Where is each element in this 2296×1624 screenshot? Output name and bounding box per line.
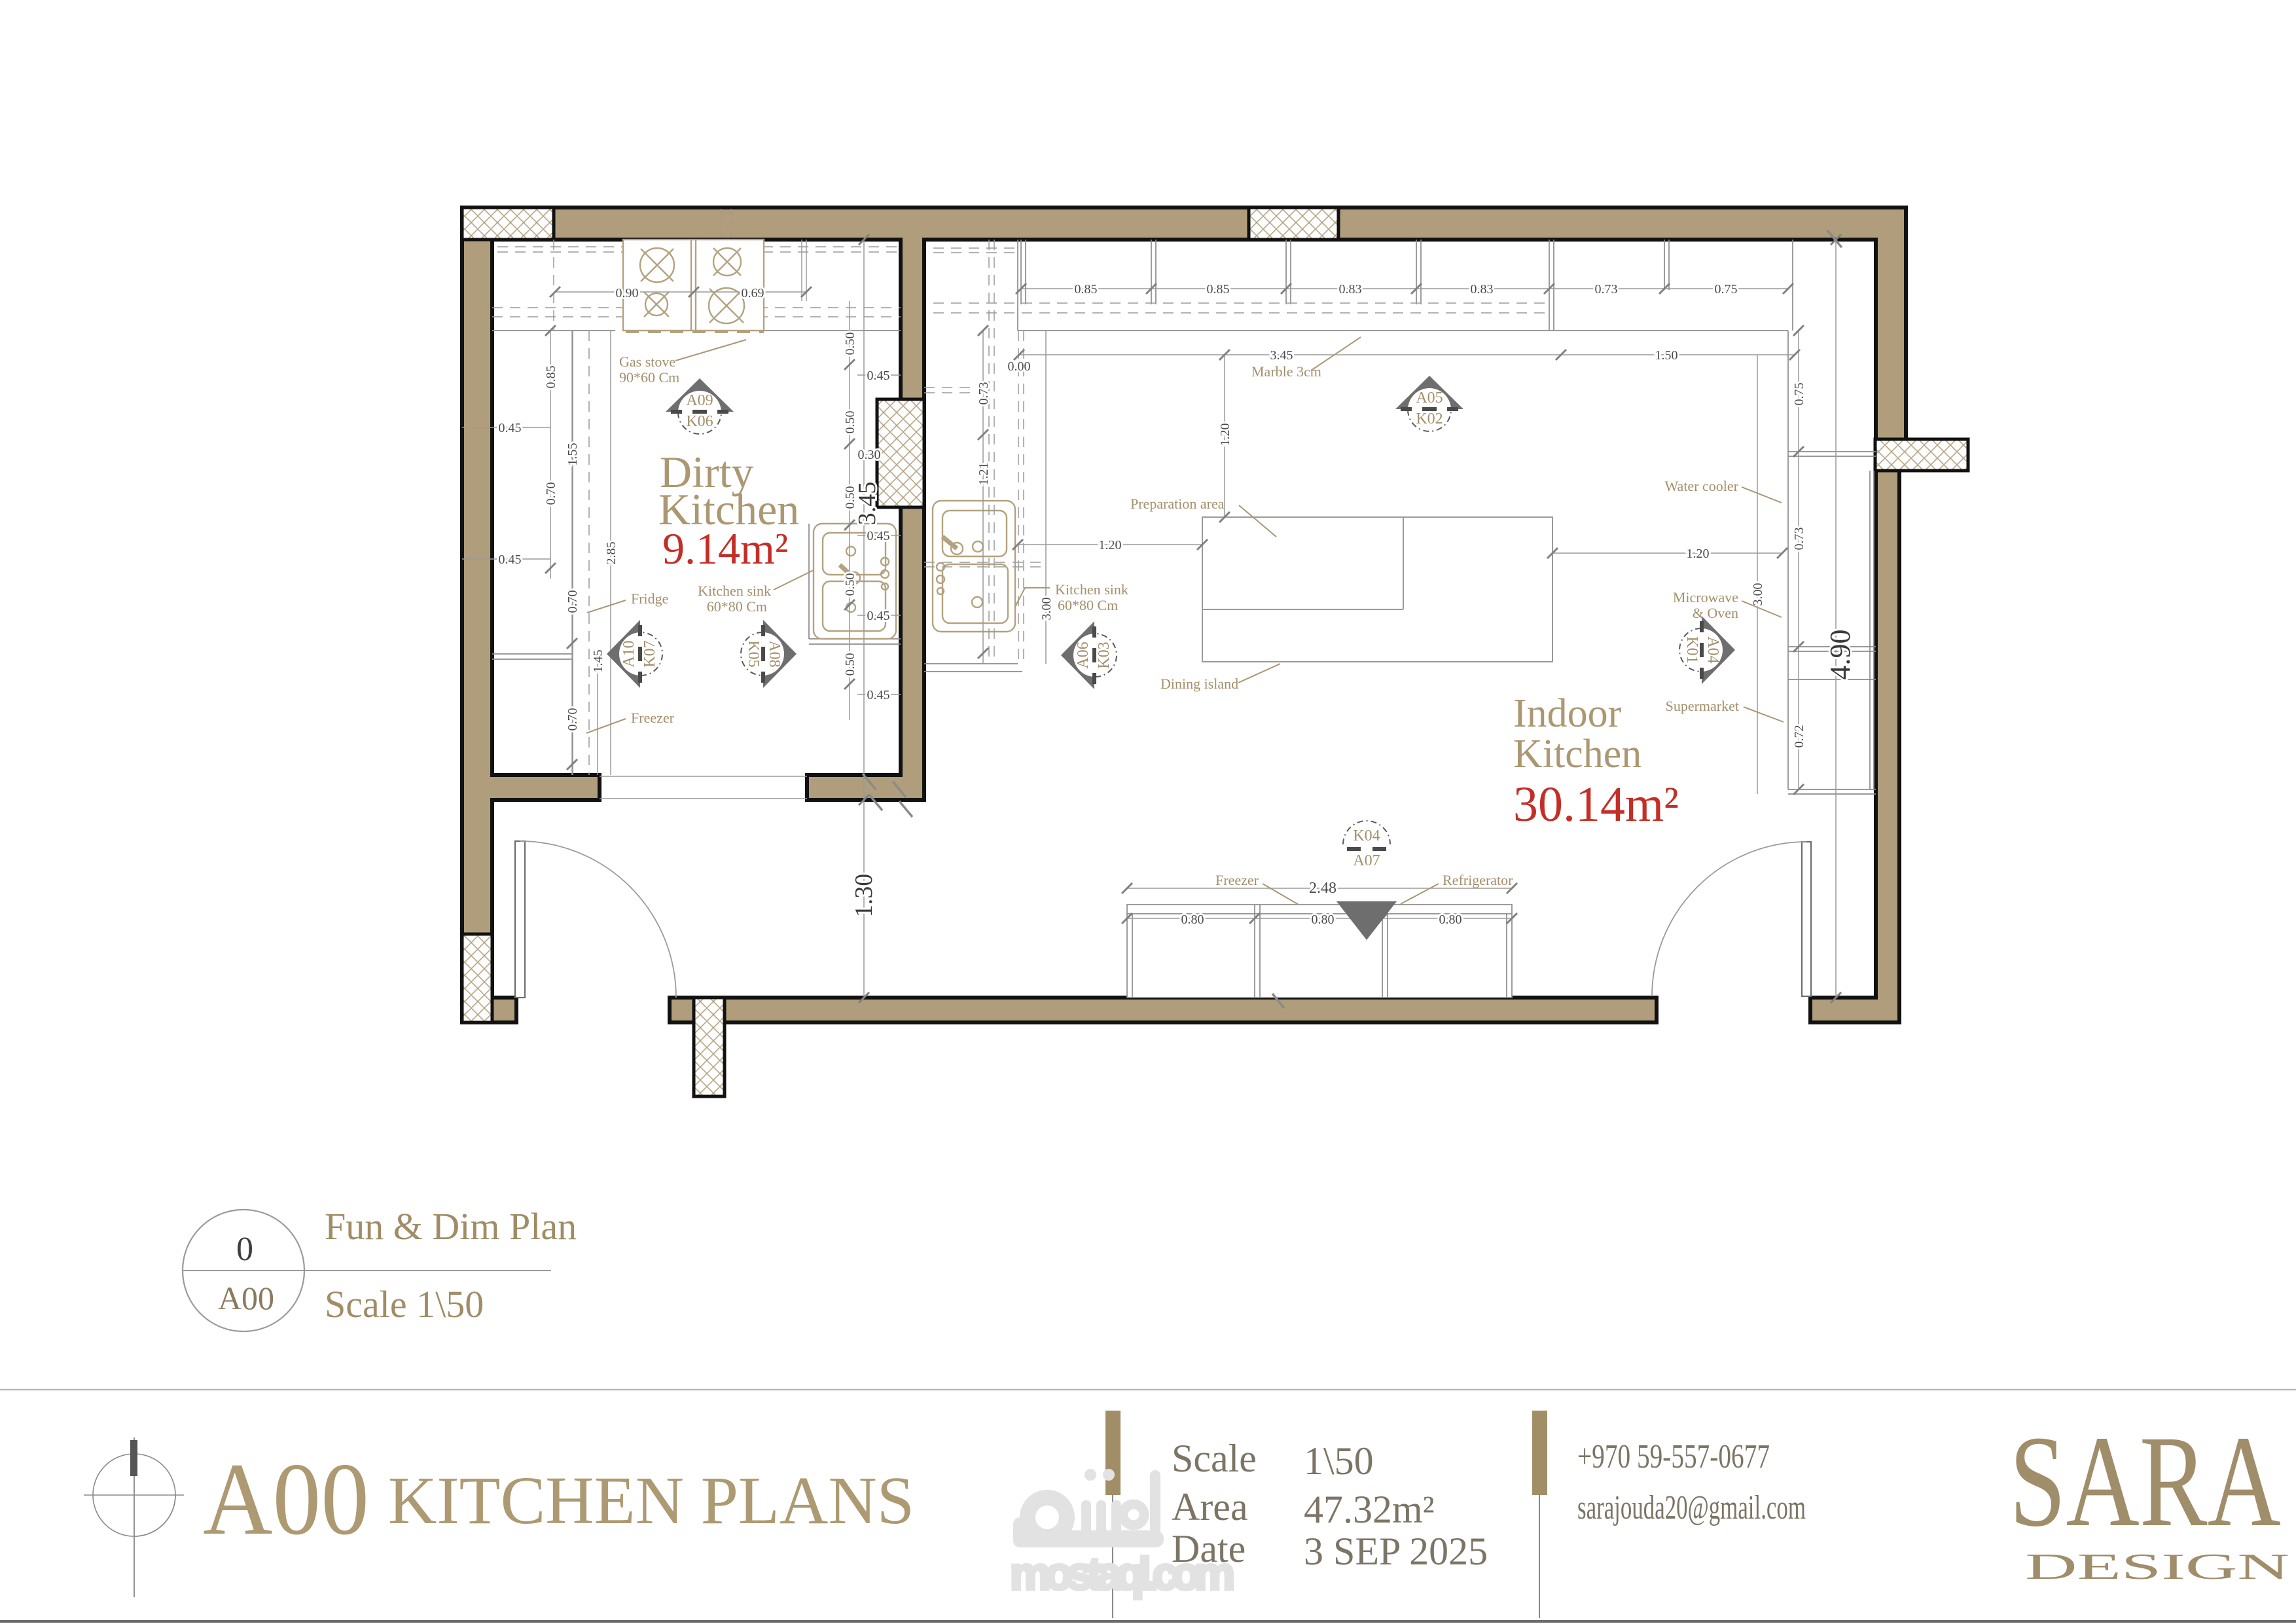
svg-text:1.20: 1.20 <box>1687 547 1710 561</box>
svg-text:Kitchen: Kitchen <box>1513 732 1641 776</box>
svg-text:0.85: 0.85 <box>544 366 558 389</box>
svg-text:2.48: 2.48 <box>1309 880 1336 897</box>
svg-text:A08: A08 <box>766 640 783 667</box>
svg-text:0.80: 0.80 <box>1181 912 1204 927</box>
svg-text:60*80 Cm: 60*80 Cm <box>707 598 767 615</box>
svg-text:K03: K03 <box>1096 641 1113 668</box>
svg-text:A06: A06 <box>1075 641 1092 668</box>
svg-text:60*80 Cm: 60*80 Cm <box>1058 597 1118 613</box>
svg-text:1.20: 1.20 <box>1099 538 1122 552</box>
svg-text:3.00: 3.00 <box>1751 583 1765 606</box>
svg-text:Microwave: Microwave <box>1673 589 1738 605</box>
svg-text:1.55: 1.55 <box>565 443 580 466</box>
svg-text:K05: K05 <box>745 640 762 667</box>
svg-text:0.45: 0.45 <box>867 688 890 702</box>
svg-text:A00: A00 <box>218 1280 274 1316</box>
svg-text:K01: K01 <box>1683 636 1700 663</box>
svg-text:1.50: 1.50 <box>1655 348 1678 363</box>
svg-text:0.50: 0.50 <box>843 333 857 355</box>
svg-text:0.85: 0.85 <box>1075 282 1098 297</box>
svg-text:Scale 1\50: Scale 1\50 <box>325 1283 484 1326</box>
svg-text:4.90: 4.90 <box>1824 630 1856 680</box>
svg-text:0.70: 0.70 <box>544 482 558 505</box>
svg-text:0.45: 0.45 <box>499 552 522 567</box>
svg-text:0.70: 0.70 <box>565 708 580 731</box>
svg-text:0.80: 0.80 <box>1312 912 1335 927</box>
svg-text:2.85: 2.85 <box>604 542 619 565</box>
svg-text:Fun & Dim Plan: Fun & Dim Plan <box>325 1205 577 1248</box>
svg-text:A07: A07 <box>1353 852 1380 869</box>
svg-text:0.73: 0.73 <box>977 382 991 405</box>
svg-text:30.14m²: 30.14m² <box>1513 777 1679 832</box>
svg-text:0.70: 0.70 <box>565 590 580 613</box>
svg-text:0.50: 0.50 <box>843 573 857 596</box>
svg-text:Indoor: Indoor <box>1513 691 1622 736</box>
svg-text:1.21: 1.21 <box>977 463 991 486</box>
svg-text:3.45: 3.45 <box>1270 348 1293 363</box>
svg-text:0.73: 0.73 <box>1792 528 1806 550</box>
svg-text:Marble 3cm: Marble 3cm <box>1251 363 1321 380</box>
svg-text:DESIGN: DESIGN <box>2025 1547 2289 1587</box>
svg-text:Supermarket: Supermarket <box>1666 698 1739 714</box>
svg-text:K06: K06 <box>686 413 713 430</box>
svg-text:Dining island: Dining island <box>1160 676 1238 692</box>
svg-text:0.45: 0.45 <box>867 369 890 383</box>
svg-text:A00: A00 <box>203 1442 369 1557</box>
svg-text:0.45: 0.45 <box>867 609 890 623</box>
svg-text:0.69: 0.69 <box>742 286 764 300</box>
svg-text:Area: Area <box>1172 1485 1248 1528</box>
svg-text:3.00: 3.00 <box>1039 598 1054 621</box>
svg-text:0: 0 <box>236 1231 253 1268</box>
svg-text:0.45: 0.45 <box>499 421 522 435</box>
svg-text:K07: K07 <box>641 640 658 667</box>
svg-text:Refrigerator: Refrigerator <box>1443 872 1513 888</box>
svg-text:Freezer: Freezer <box>1215 872 1259 888</box>
svg-text:Freezer: Freezer <box>631 710 675 726</box>
svg-text:0.50: 0.50 <box>843 653 857 676</box>
svg-text:A10: A10 <box>620 640 637 667</box>
svg-text:0.00: 0.00 <box>1008 359 1031 374</box>
svg-text:0.85: 0.85 <box>1207 282 1230 297</box>
svg-text:0.80: 0.80 <box>1439 912 1462 927</box>
svg-text:3.45: 3.45 <box>853 482 881 526</box>
svg-text:0.83: 0.83 <box>1471 282 1494 297</box>
svg-text:A05: A05 <box>1416 389 1443 406</box>
svg-text:0.75: 0.75 <box>1792 383 1806 406</box>
svg-text:Water cooler: Water cooler <box>1665 478 1739 494</box>
svg-text:Gas stove: Gas stove <box>619 353 675 370</box>
svg-text:0.90: 0.90 <box>616 286 639 300</box>
svg-text:3 SEP 2025: 3 SEP 2025 <box>1304 1530 1488 1573</box>
svg-text:0.45: 0.45 <box>867 529 890 543</box>
svg-text:47.32m²: 47.32m² <box>1304 1488 1435 1531</box>
svg-text:K04: K04 <box>1353 827 1380 844</box>
svg-text:& Oven: & Oven <box>1693 605 1738 621</box>
svg-text:0.83: 0.83 <box>1339 282 1362 297</box>
svg-text:Kitchen sink: Kitchen sink <box>698 583 771 599</box>
svg-text:A04: A04 <box>1704 636 1721 663</box>
svg-text:0.73: 0.73 <box>1595 282 1618 297</box>
svg-text:SARA: SARA <box>2009 1409 2281 1554</box>
svg-text:KITCHEN PLANS: KITCHEN PLANS <box>388 1463 914 1538</box>
svg-text:K02: K02 <box>1416 410 1443 427</box>
svg-text:0.72: 0.72 <box>1792 725 1806 748</box>
svg-text:1.20: 1.20 <box>1218 424 1232 446</box>
svg-text:mostaql.com: mostaql.com <box>1010 1548 1235 1599</box>
svg-text:1.30: 1.30 <box>850 874 878 918</box>
svg-text:sarajouda20@gmail.com: sarajouda20@gmail.com <box>1577 1489 1806 1526</box>
svg-text:1\50: 1\50 <box>1304 1439 1374 1483</box>
svg-text:0.30: 0.30 <box>858 448 881 462</box>
svg-text:1.45: 1.45 <box>591 650 605 673</box>
svg-text:A09: A09 <box>686 392 713 409</box>
svg-text:90*60 Cm: 90*60 Cm <box>619 369 679 386</box>
svg-text:Preparation area: Preparation area <box>1130 496 1225 512</box>
svg-text:0.50: 0.50 <box>843 411 857 434</box>
svg-text:+970 59-557-0677: +970 59-557-0677 <box>1577 1438 1770 1475</box>
svg-text:0.75: 0.75 <box>1715 282 1738 297</box>
svg-text:Kitchen sink: Kitchen sink <box>1055 581 1128 598</box>
svg-text:Fridge: Fridge <box>631 590 668 607</box>
svg-text:Scale: Scale <box>1172 1437 1257 1480</box>
svg-text:9.14m²: 9.14m² <box>662 524 788 573</box>
